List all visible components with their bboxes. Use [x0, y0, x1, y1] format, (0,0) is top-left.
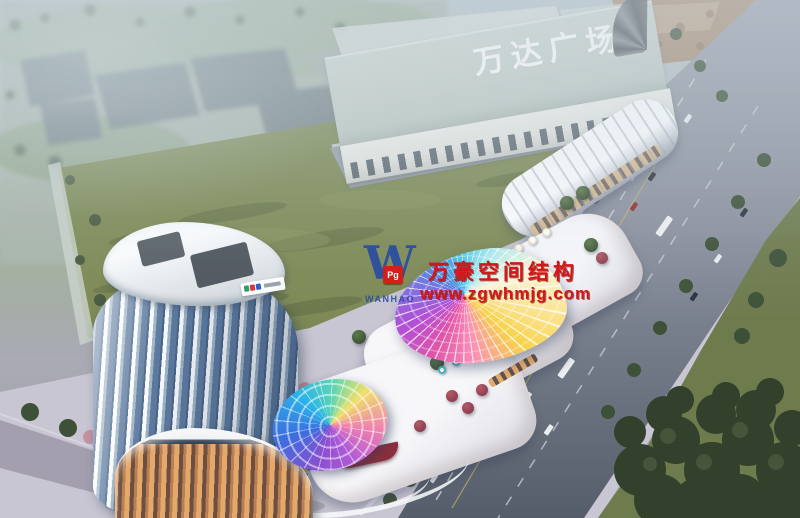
watermark-logo-seal: Pg	[383, 266, 403, 284]
teal-umbrella	[438, 366, 446, 374]
white-umbrella	[528, 236, 537, 245]
watermark-website-text: www.zgwhmjg.com	[420, 284, 591, 304]
white-umbrella	[542, 228, 551, 237]
watermark-logo-word: WANHAO	[358, 294, 422, 304]
autumn-tree	[476, 384, 488, 396]
watermark: W Pg WANHAO 万豪空间结构 www.zgwhmjg.com	[358, 250, 658, 322]
logo-mark	[256, 283, 262, 290]
watermark-company-text: 万豪空间结构	[428, 256, 578, 286]
autumn-tree	[462, 402, 474, 414]
rooftop-tree	[352, 330, 366, 344]
rooftop-tree	[576, 186, 590, 200]
autumn-tree	[446, 390, 458, 402]
highrise-tower	[93, 222, 303, 518]
logo-mark	[250, 284, 256, 291]
rooftop-tree	[560, 196, 574, 210]
logo-mark	[244, 285, 250, 292]
aerial-rendering-scene: 万达广场	[0, 0, 800, 518]
logo-text-smudge	[264, 281, 281, 288]
